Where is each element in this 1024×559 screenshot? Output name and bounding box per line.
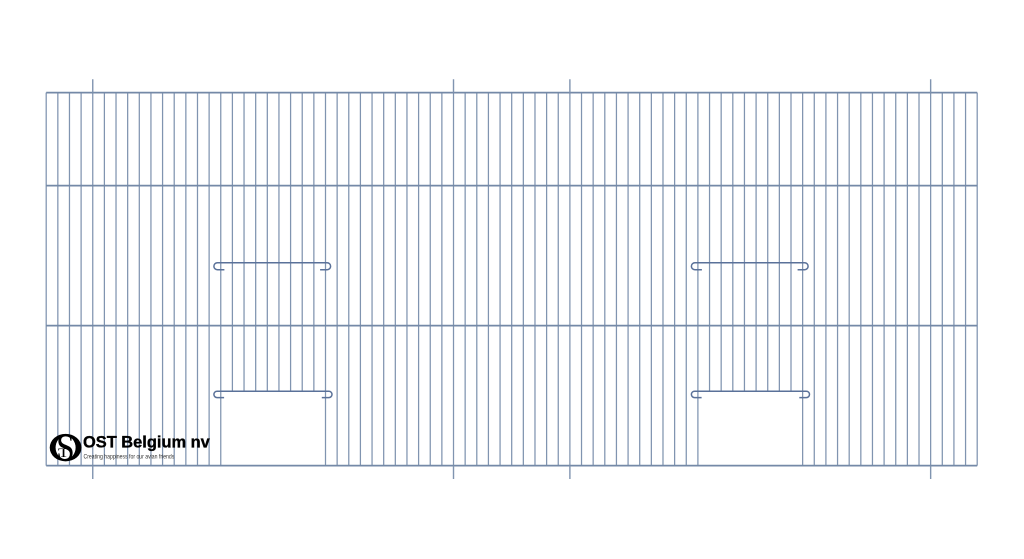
svg-text:OST Belgium nv: OST Belgium nv <box>83 433 211 451</box>
svg-text:Creating happiness for our avi: Creating happiness for our avian friends <box>84 453 175 460</box>
svg-text:S: S <box>56 426 75 468</box>
